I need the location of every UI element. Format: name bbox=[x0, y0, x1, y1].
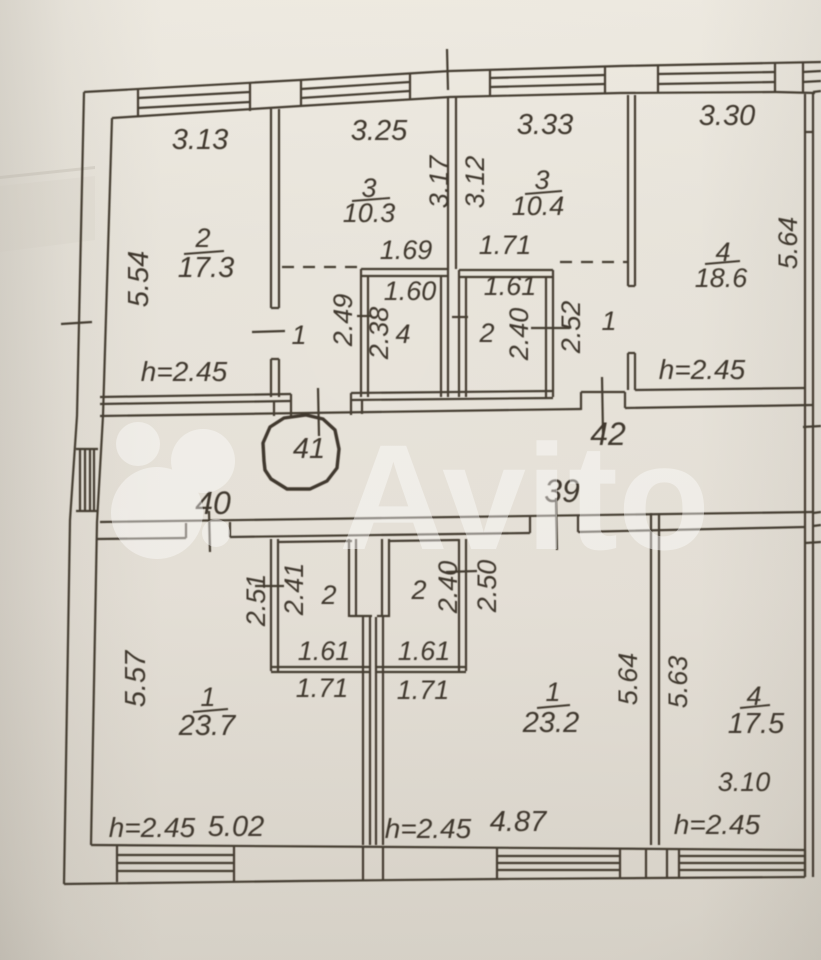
svg-text:1.60: 1.60 bbox=[384, 276, 437, 306]
svg-text:23.2: 23.2 bbox=[522, 707, 579, 739]
svg-text:1.61: 1.61 bbox=[484, 271, 537, 301]
svg-text:41: 41 bbox=[293, 433, 325, 465]
svg-text:5.63: 5.63 bbox=[663, 656, 693, 709]
svg-text:2.41: 2.41 bbox=[279, 563, 309, 617]
svg-text:2.49: 2.49 bbox=[328, 294, 358, 348]
svg-text:5.64: 5.64 bbox=[613, 653, 643, 706]
svg-text:5.54: 5.54 bbox=[123, 251, 155, 307]
svg-text:1.69: 1.69 bbox=[380, 235, 433, 265]
svg-text:Avito: Avito bbox=[339, 413, 710, 581]
svg-text:1: 1 bbox=[200, 682, 215, 712]
svg-text:1.61: 1.61 bbox=[398, 636, 451, 666]
svg-text:2.52: 2.52 bbox=[556, 301, 586, 355]
svg-text:17.5: 17.5 bbox=[728, 708, 785, 740]
svg-text:18.6: 18.6 bbox=[695, 263, 749, 293]
svg-text:23.7: 23.7 bbox=[178, 710, 237, 742]
svg-text:1.61: 1.61 bbox=[298, 636, 351, 666]
svg-text:3.13: 3.13 bbox=[172, 124, 228, 156]
svg-text:3.10: 3.10 bbox=[718, 767, 771, 797]
svg-text:2: 2 bbox=[194, 223, 210, 253]
svg-text:3.17: 3.17 bbox=[424, 155, 454, 209]
svg-text:h=2.45: h=2.45 bbox=[659, 354, 746, 385]
svg-text:17.3: 17.3 bbox=[178, 252, 234, 284]
svg-text:h=2.45: h=2.45 bbox=[109, 812, 196, 843]
svg-text:2.40: 2.40 bbox=[504, 308, 534, 362]
svg-text:1.71: 1.71 bbox=[296, 673, 349, 703]
svg-text:1.71: 1.71 bbox=[479, 230, 532, 260]
svg-text:1: 1 bbox=[291, 320, 306, 350]
svg-text:2.38: 2.38 bbox=[364, 307, 394, 361]
svg-text:10.3: 10.3 bbox=[343, 198, 396, 228]
svg-text:h=2.45: h=2.45 bbox=[385, 813, 472, 844]
svg-text:4: 4 bbox=[395, 319, 410, 349]
svg-text:2: 2 bbox=[320, 580, 336, 610]
svg-text:5.02: 5.02 bbox=[208, 811, 264, 843]
svg-text:3.25: 3.25 bbox=[351, 115, 408, 147]
svg-text:1: 1 bbox=[545, 677, 560, 707]
svg-text:1.71: 1.71 bbox=[397, 675, 450, 705]
svg-text:h=2.45: h=2.45 bbox=[674, 809, 761, 840]
svg-text:3.33: 3.33 bbox=[517, 109, 573, 141]
svg-text:5.64: 5.64 bbox=[773, 217, 803, 270]
svg-text:3.12: 3.12 bbox=[460, 156, 490, 209]
svg-text:2.51: 2.51 bbox=[241, 574, 271, 628]
svg-text:2: 2 bbox=[478, 318, 494, 348]
svg-text:5.57: 5.57 bbox=[120, 649, 152, 707]
svg-text:3.30: 3.30 bbox=[699, 100, 755, 132]
svg-text:10.4: 10.4 bbox=[512, 191, 565, 221]
svg-text:1: 1 bbox=[601, 306, 616, 336]
svg-text:h=2.45: h=2.45 bbox=[141, 356, 228, 387]
svg-text:4.87: 4.87 bbox=[490, 806, 548, 838]
